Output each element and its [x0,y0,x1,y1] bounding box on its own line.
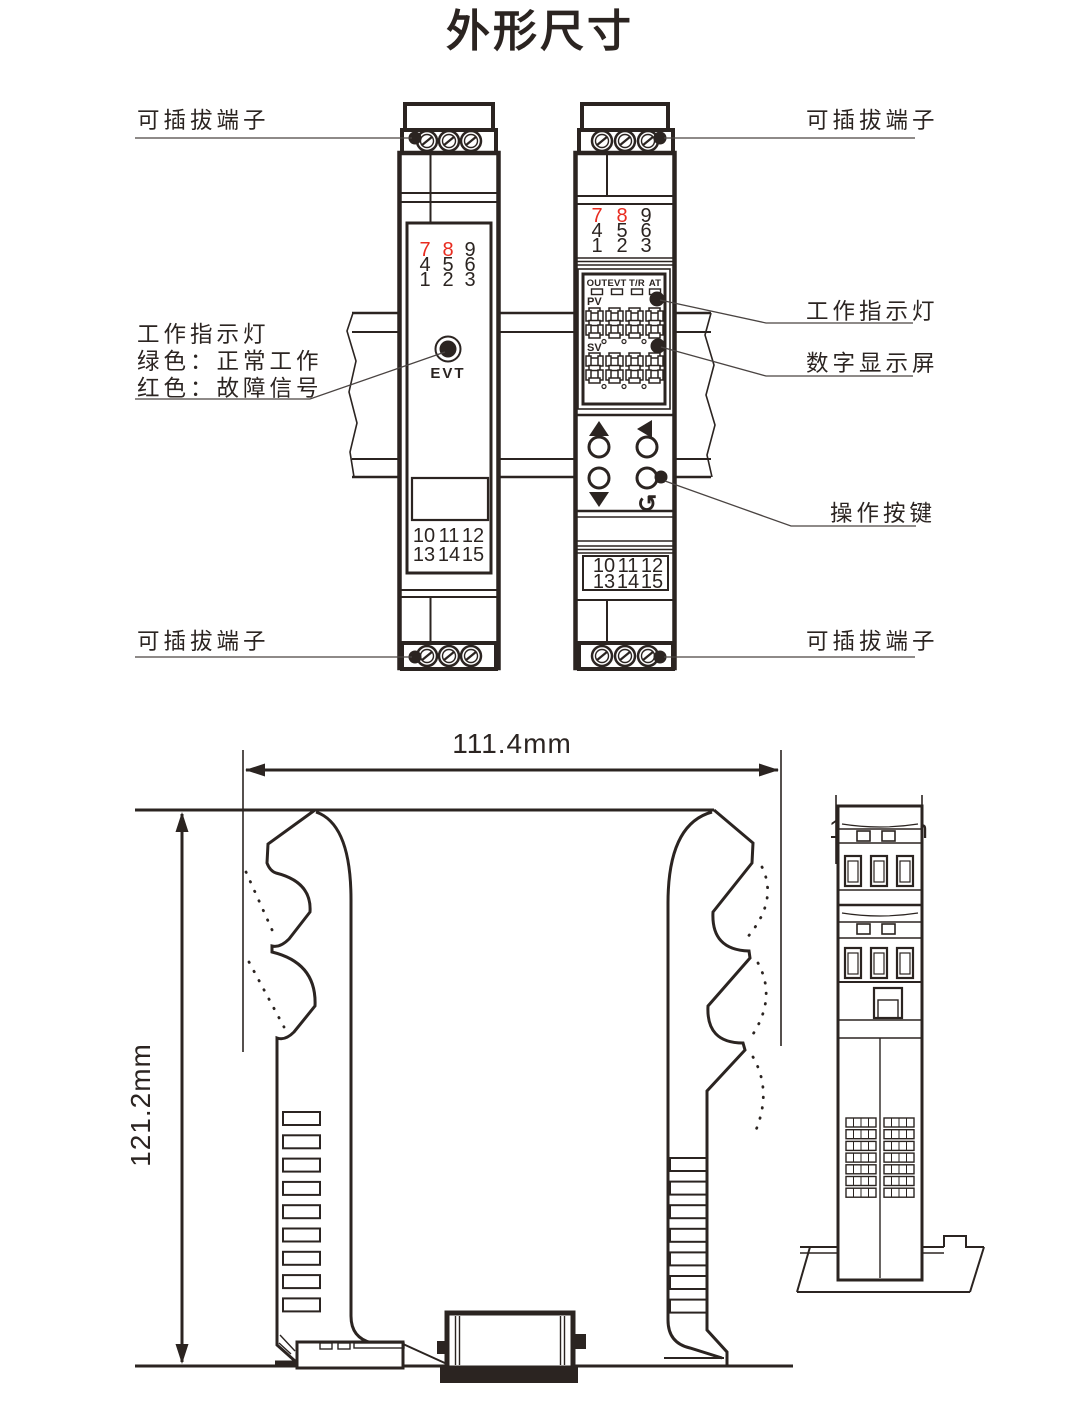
terminal-number: 15 [641,571,663,593]
vent-slots-right [670,1158,707,1313]
screw-icon [439,646,459,666]
clip-travel-dotted-lines [246,867,768,1130]
callout-indicator-line3: 红色：故障信号 [137,376,323,401]
height-dimension: 121.2mm [125,812,189,1364]
vent-slots-left [283,1112,320,1311]
led-label: EVT [430,365,465,382]
terminal-number: 3 [464,269,475,291]
terminal-number: 3 [640,235,651,257]
height-dimension-label: 121.2mm [125,1043,156,1167]
return-arrow-icon: ↺ [637,491,657,518]
screw-icon [592,646,612,666]
callout-pluggable-terminal-top-left: 可插拔端子 [137,108,270,133]
pv-label: PV [587,296,602,308]
rail-break-left [347,313,357,477]
status-label: EVT [607,278,626,289]
down-button [589,468,609,488]
left-module: 7 8 9 4 5 6 1 2 3 EVT 10 11 12 13 14 15 [400,104,500,669]
screw-icon [439,131,459,151]
right-module: 7 8 9 4 5 6 1 2 3 OUT EVT T/R AT P [576,104,675,669]
status-led [440,341,457,358]
width-dimension-label: 111.4mm [452,728,572,759]
callout-operation-keys: 操作按键 [830,501,936,526]
terminal-number: 1 [591,235,602,257]
callout-digital-display: 数字显示屏 [806,351,939,376]
terminal-number: 14 [438,544,460,566]
callout-indicator-line1: 工作指示灯 [137,322,270,347]
side-view-drawing: 17.5mm [797,795,984,1292]
screw-icon [592,131,612,151]
rail-break-right [705,313,715,477]
callout-pluggable-terminal-bottom-left: 可插拔端子 [137,629,270,654]
screw-icon [615,646,635,666]
terminal-number-grid-top: 7 8 9 4 5 6 1 2 3 [419,239,475,291]
status-label: OUT [587,278,608,289]
terminal-number-grid-bottom: 10 11 12 13 14 15 [413,525,484,566]
callouts: 可插拔端子 工作指示灯 绿色：正常工作 红色：故障信号 可插拔端子 可插拔端子 … [135,108,939,657]
width-dimension: 111.4mm [243,728,781,1052]
callout-working-indicator: 工作指示灯 [806,299,939,324]
up-button [589,437,609,457]
enter-button [637,468,657,488]
terminal-number-grid-top: 7 8 9 4 5 6 1 2 3 [591,205,651,257]
terminal-number: 2 [616,235,627,257]
left-button [637,437,657,457]
sv-indicator-led [651,339,666,354]
front-profile-drawing [135,810,793,1383]
callout-pluggable-terminal-top-right: 可插拔端子 [806,108,939,133]
screw-icon [461,646,481,666]
screw-icon [461,131,481,151]
page-title: 外形尺寸 [446,7,634,56]
screw-icon [615,131,635,151]
terminal-number-grid-bottom: 10 11 12 13 14 15 [593,555,663,593]
terminal-number: 2 [442,269,453,291]
bus-connector [437,1313,586,1383]
outline-dimensions-page: 外形尺寸 7 8 9 4 5 [0,0,1080,1415]
terminal-number: 15 [462,544,484,566]
status-label: T/R [629,278,645,289]
outline-dimensions-diagram: 外形尺寸 7 8 9 4 5 [0,0,1080,1415]
sv-label: SV [587,342,602,354]
pv-indicator-led [650,292,665,307]
callout-pluggable-terminal-bottom-right: 可插拔端子 [806,629,939,654]
terminal-number: 13 [593,571,615,593]
terminal-number: 1 [419,269,430,291]
terminal-number: 13 [413,544,435,566]
terminal-number: 14 [617,571,639,593]
callout-indicator-line2: 绿色：正常工作 [137,349,323,374]
status-label: AT [649,278,661,289]
